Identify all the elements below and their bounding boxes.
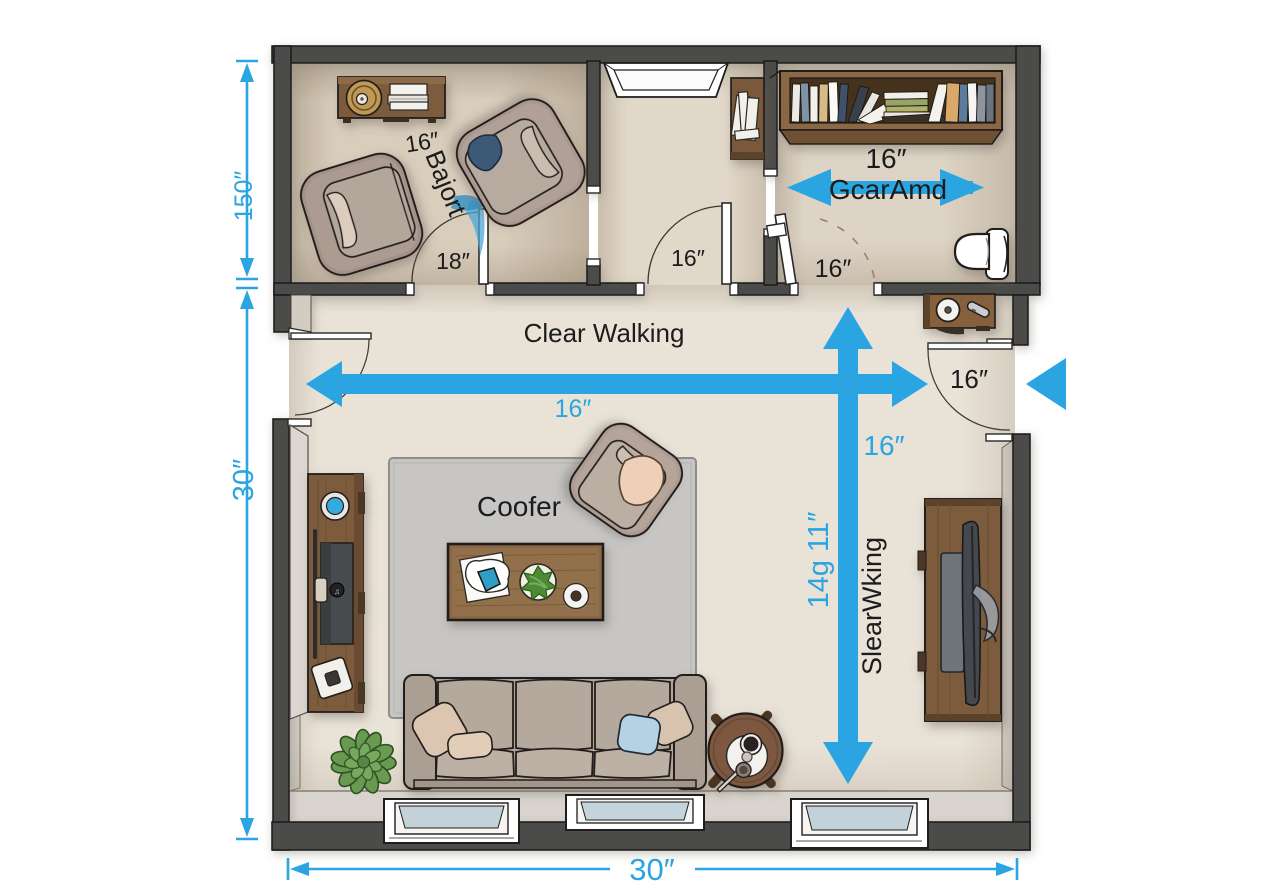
- svg-text:30″: 30″: [228, 459, 260, 502]
- svg-text:♫: ♫: [334, 587, 340, 596]
- svg-text:30″: 30″: [629, 852, 674, 887]
- svg-text:150″: 150″: [230, 171, 258, 222]
- svg-text:Coofer: Coofer: [477, 491, 561, 522]
- svg-text:GcarAmd: GcarAmd: [829, 174, 947, 205]
- svg-text:16″: 16″: [950, 364, 988, 394]
- svg-text:16″: 16″: [555, 395, 592, 423]
- svg-text:16″: 16″: [671, 245, 705, 271]
- svg-text:16″: 16″: [863, 430, 904, 461]
- svg-text:16″: 16″: [815, 255, 852, 283]
- svg-text:14g 11″: 14g 11″: [803, 512, 835, 609]
- svg-text:Clear Walking: Clear Walking: [524, 318, 685, 348]
- svg-text:16″: 16″: [865, 143, 906, 174]
- svg-text:18″: 18″: [436, 248, 470, 274]
- svg-text:SlearWking: SlearWking: [857, 537, 887, 675]
